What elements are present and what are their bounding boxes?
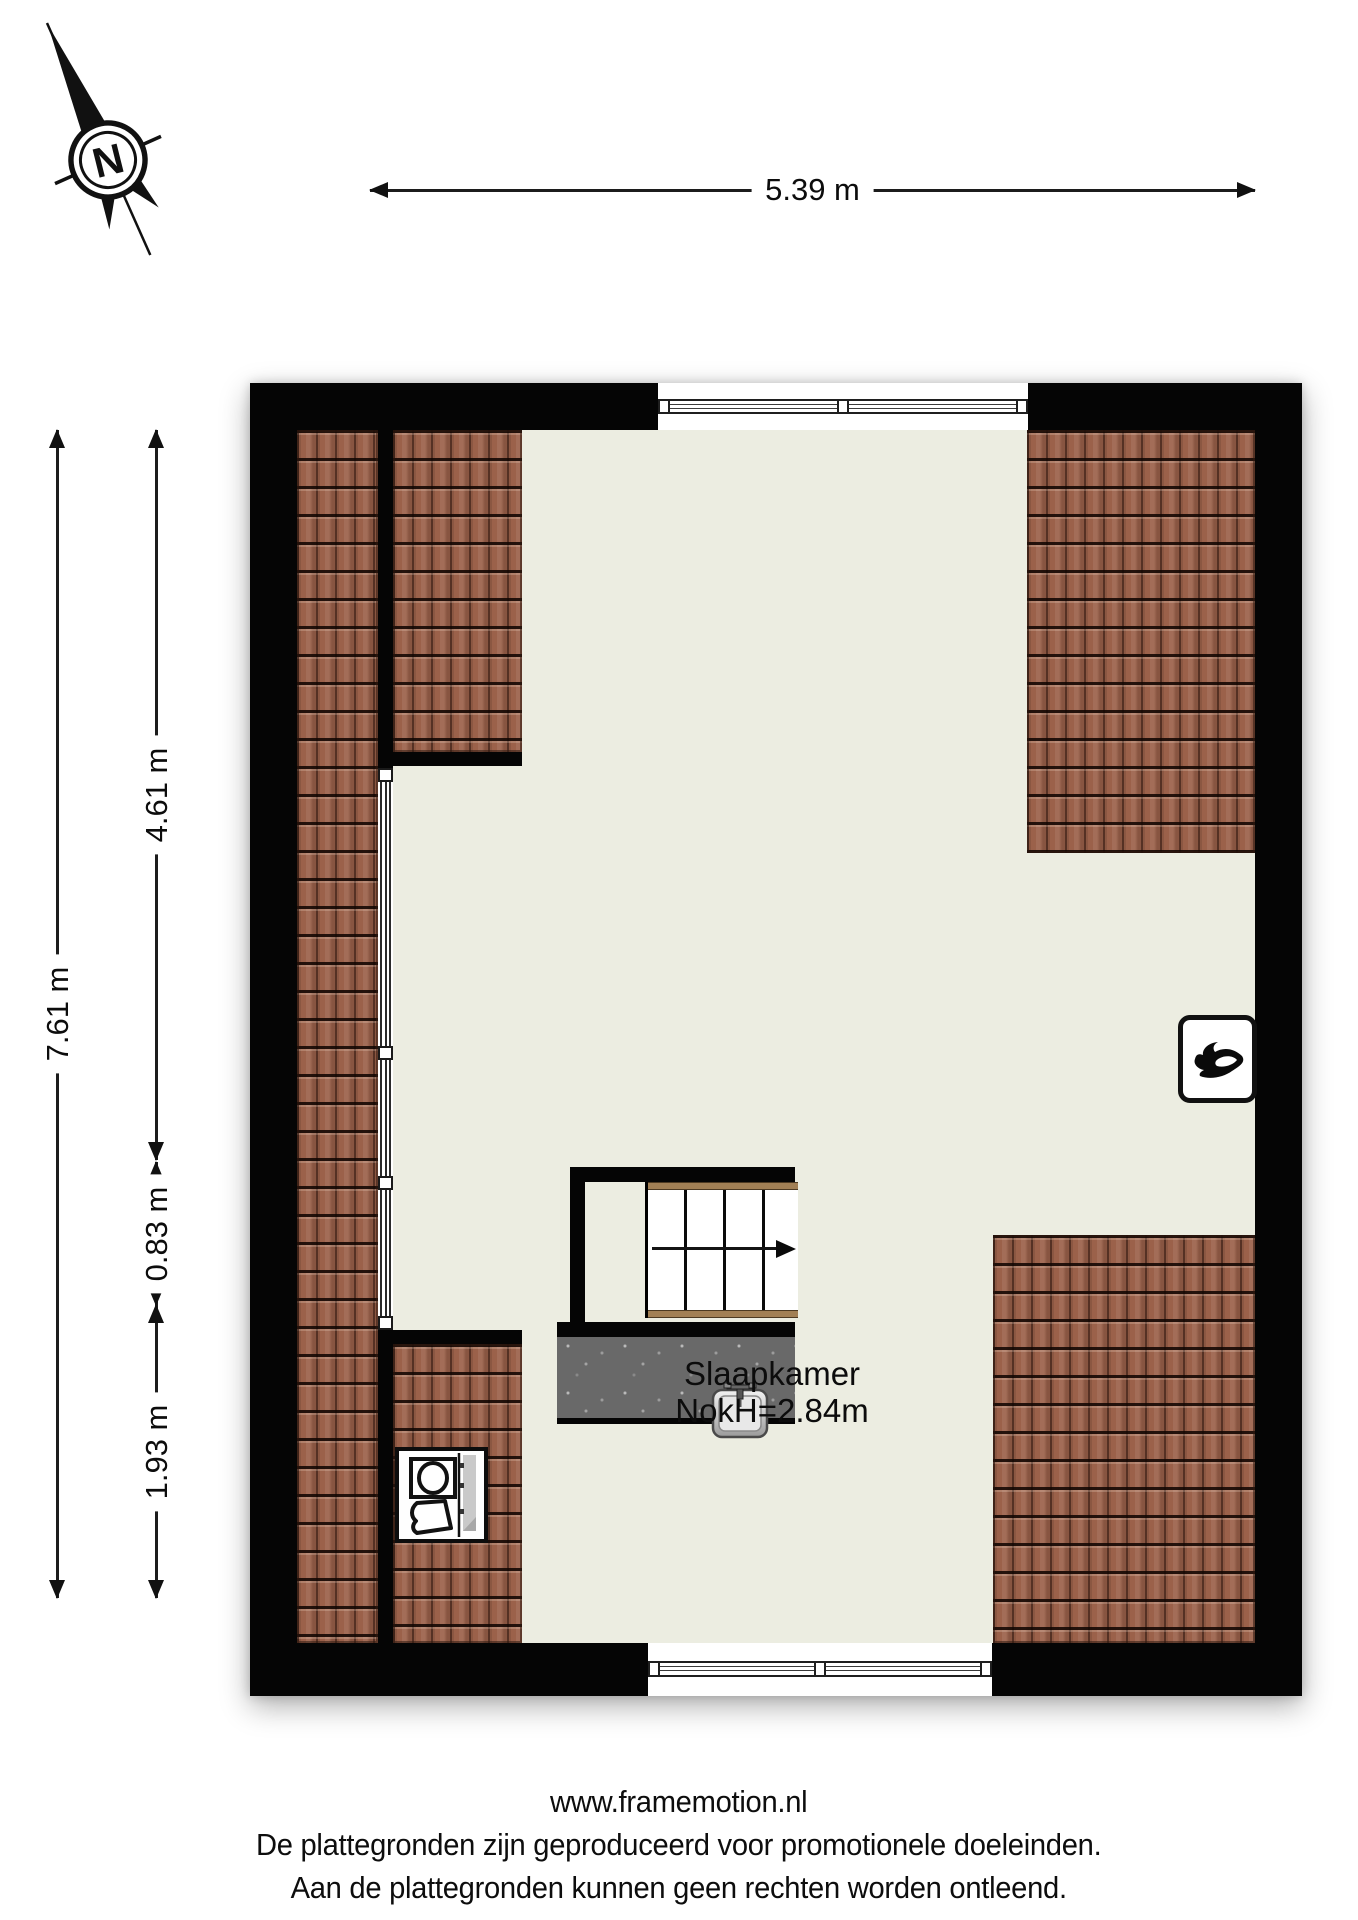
dimension-top-label: 5.39 m xyxy=(751,171,874,209)
dimension-top: 5.39 m xyxy=(370,181,1255,199)
flame-icon xyxy=(1190,1038,1246,1080)
bottom-facade-window xyxy=(648,1643,992,1696)
arrowhead-down-icon xyxy=(148,1142,164,1161)
floorplan: Slaapkamer NokH=2.84m xyxy=(250,383,1302,1696)
dimension-segment-1-label: 4.61 m xyxy=(138,736,176,855)
arrowhead-up-icon xyxy=(49,429,65,448)
dimension-segment-3-label: 1.93 m xyxy=(138,1392,176,1511)
arrowhead-up-icon xyxy=(148,429,164,448)
top-facade-window xyxy=(658,383,1028,430)
dimension-left-total: 7.61 m xyxy=(43,430,73,1598)
roof-tiles-upper-right xyxy=(1027,430,1255,853)
roof-tiles-lower-right xyxy=(993,1235,1255,1643)
knee-wall-upper xyxy=(378,430,393,768)
stair-edge-top xyxy=(648,1182,798,1190)
room-label: Slaapkamer NokH=2.84m xyxy=(572,1355,972,1429)
window-glazing xyxy=(648,1661,992,1677)
window-mullion xyxy=(814,1661,826,1677)
room-ridge-height: NokH=2.84m xyxy=(572,1392,972,1429)
washing-machine-icon xyxy=(395,1447,488,1543)
stairwell-wall-bottom xyxy=(557,1322,795,1337)
arrowhead-left-icon xyxy=(369,182,388,198)
floorplan-page: N 5.39 m 7.61 m 4.61 m 0.83 m 1.93 m xyxy=(0,0,1358,1920)
window-divider xyxy=(378,1316,393,1330)
dimension-segment-1: 4.61 m xyxy=(142,430,172,1160)
window-divider xyxy=(378,1176,393,1190)
wall-under-upper-left-tiles xyxy=(378,752,522,766)
wall-over-lower-left-tiles xyxy=(378,1330,522,1344)
stair-edge-bottom xyxy=(648,1310,798,1318)
dimension-segment-2: 0.83 m xyxy=(142,1162,172,1305)
window-mullion xyxy=(980,1661,992,1677)
arrowhead-right-icon xyxy=(1237,182,1256,198)
staircase xyxy=(645,1182,798,1318)
roof-tiles-left-strip xyxy=(297,430,378,1643)
knee-wall-window xyxy=(378,768,393,1330)
north-compass-icon: N xyxy=(18,8,198,273)
heater-unit xyxy=(1178,1015,1257,1103)
room-name: Slaapkamer xyxy=(572,1355,972,1392)
window-mullion xyxy=(837,399,849,414)
stairs-arrowhead-icon xyxy=(776,1240,796,1258)
roof-tiles-upper-left xyxy=(393,430,522,752)
window-mullion xyxy=(648,1661,660,1677)
arrowhead-down-icon xyxy=(148,1580,164,1599)
stairwell-wall-top xyxy=(570,1167,795,1182)
stairs-direction-arrow-icon xyxy=(652,1247,780,1250)
arrowhead-up-icon xyxy=(148,1304,164,1323)
footer-website: www.framemotion.nl xyxy=(256,1780,1101,1823)
window-mullion xyxy=(658,399,670,414)
knee-wall-lower xyxy=(378,1330,393,1643)
footer-disclaimer-2: Aan de plattegronden kunnen geen rechten… xyxy=(256,1866,1101,1909)
window-divider xyxy=(378,768,393,782)
dimension-segment-3: 1.93 m xyxy=(142,1305,172,1598)
window-mullion xyxy=(1016,399,1028,414)
window-glazing xyxy=(658,399,1028,414)
bedroom-interior: Slaapkamer NokH=2.84m xyxy=(297,430,1255,1643)
stairwell-wall-left xyxy=(570,1167,585,1337)
dimension-left-total-label: 7.61 m xyxy=(39,955,77,1074)
window-divider xyxy=(378,1046,393,1060)
footer: www.framemotion.nl De plattegronden zijn… xyxy=(0,1780,1358,1909)
arrowhead-down-icon xyxy=(49,1580,65,1599)
dimension-segment-2-label: 0.83 m xyxy=(138,1174,176,1293)
footer-disclaimer-1: De plattegronden zijn geproduceerd voor … xyxy=(256,1823,1101,1866)
